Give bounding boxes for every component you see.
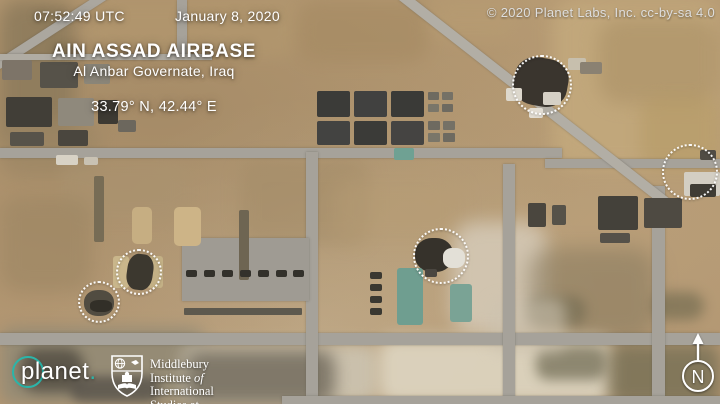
page-title: AIN ASSAD AIRBASE bbox=[34, 41, 274, 63]
damage-circle bbox=[78, 281, 120, 323]
copyright-credit: © 2020 Planet Labs, Inc. cc-by-sa 4.0 bbox=[487, 5, 715, 20]
damage-circle bbox=[116, 249, 162, 295]
damage-circle bbox=[662, 144, 718, 200]
location-subtitle: Al Anbar Governate, Iraq bbox=[34, 63, 274, 79]
capture-date: January 8, 2020 bbox=[175, 8, 280, 24]
institute-name-line1: Middlebury Instituteof bbox=[150, 358, 214, 385]
north-label: N bbox=[692, 367, 705, 387]
damage-circle bbox=[413, 228, 469, 284]
institute-name-line2: International Studies at Monterey bbox=[150, 385, 214, 404]
institute-text: Middlebury Instituteof International Stu… bbox=[150, 358, 214, 404]
satellite-image: 07:52:49 UTC January 8, 2020 AIN ASSAD A… bbox=[0, 0, 720, 404]
planet-logo: planet. bbox=[10, 352, 110, 398]
capture-time: 07:52:49 UTC bbox=[34, 8, 125, 24]
planet-dot: . bbox=[89, 358, 96, 385]
planet-wordmark: planet. bbox=[21, 358, 97, 386]
north-compass-icon: N bbox=[677, 329, 720, 397]
damage-circle bbox=[512, 55, 572, 115]
institute-shield-icon bbox=[110, 354, 144, 398]
coordinates-label: 33.79° N, 42.44° E bbox=[34, 99, 274, 115]
